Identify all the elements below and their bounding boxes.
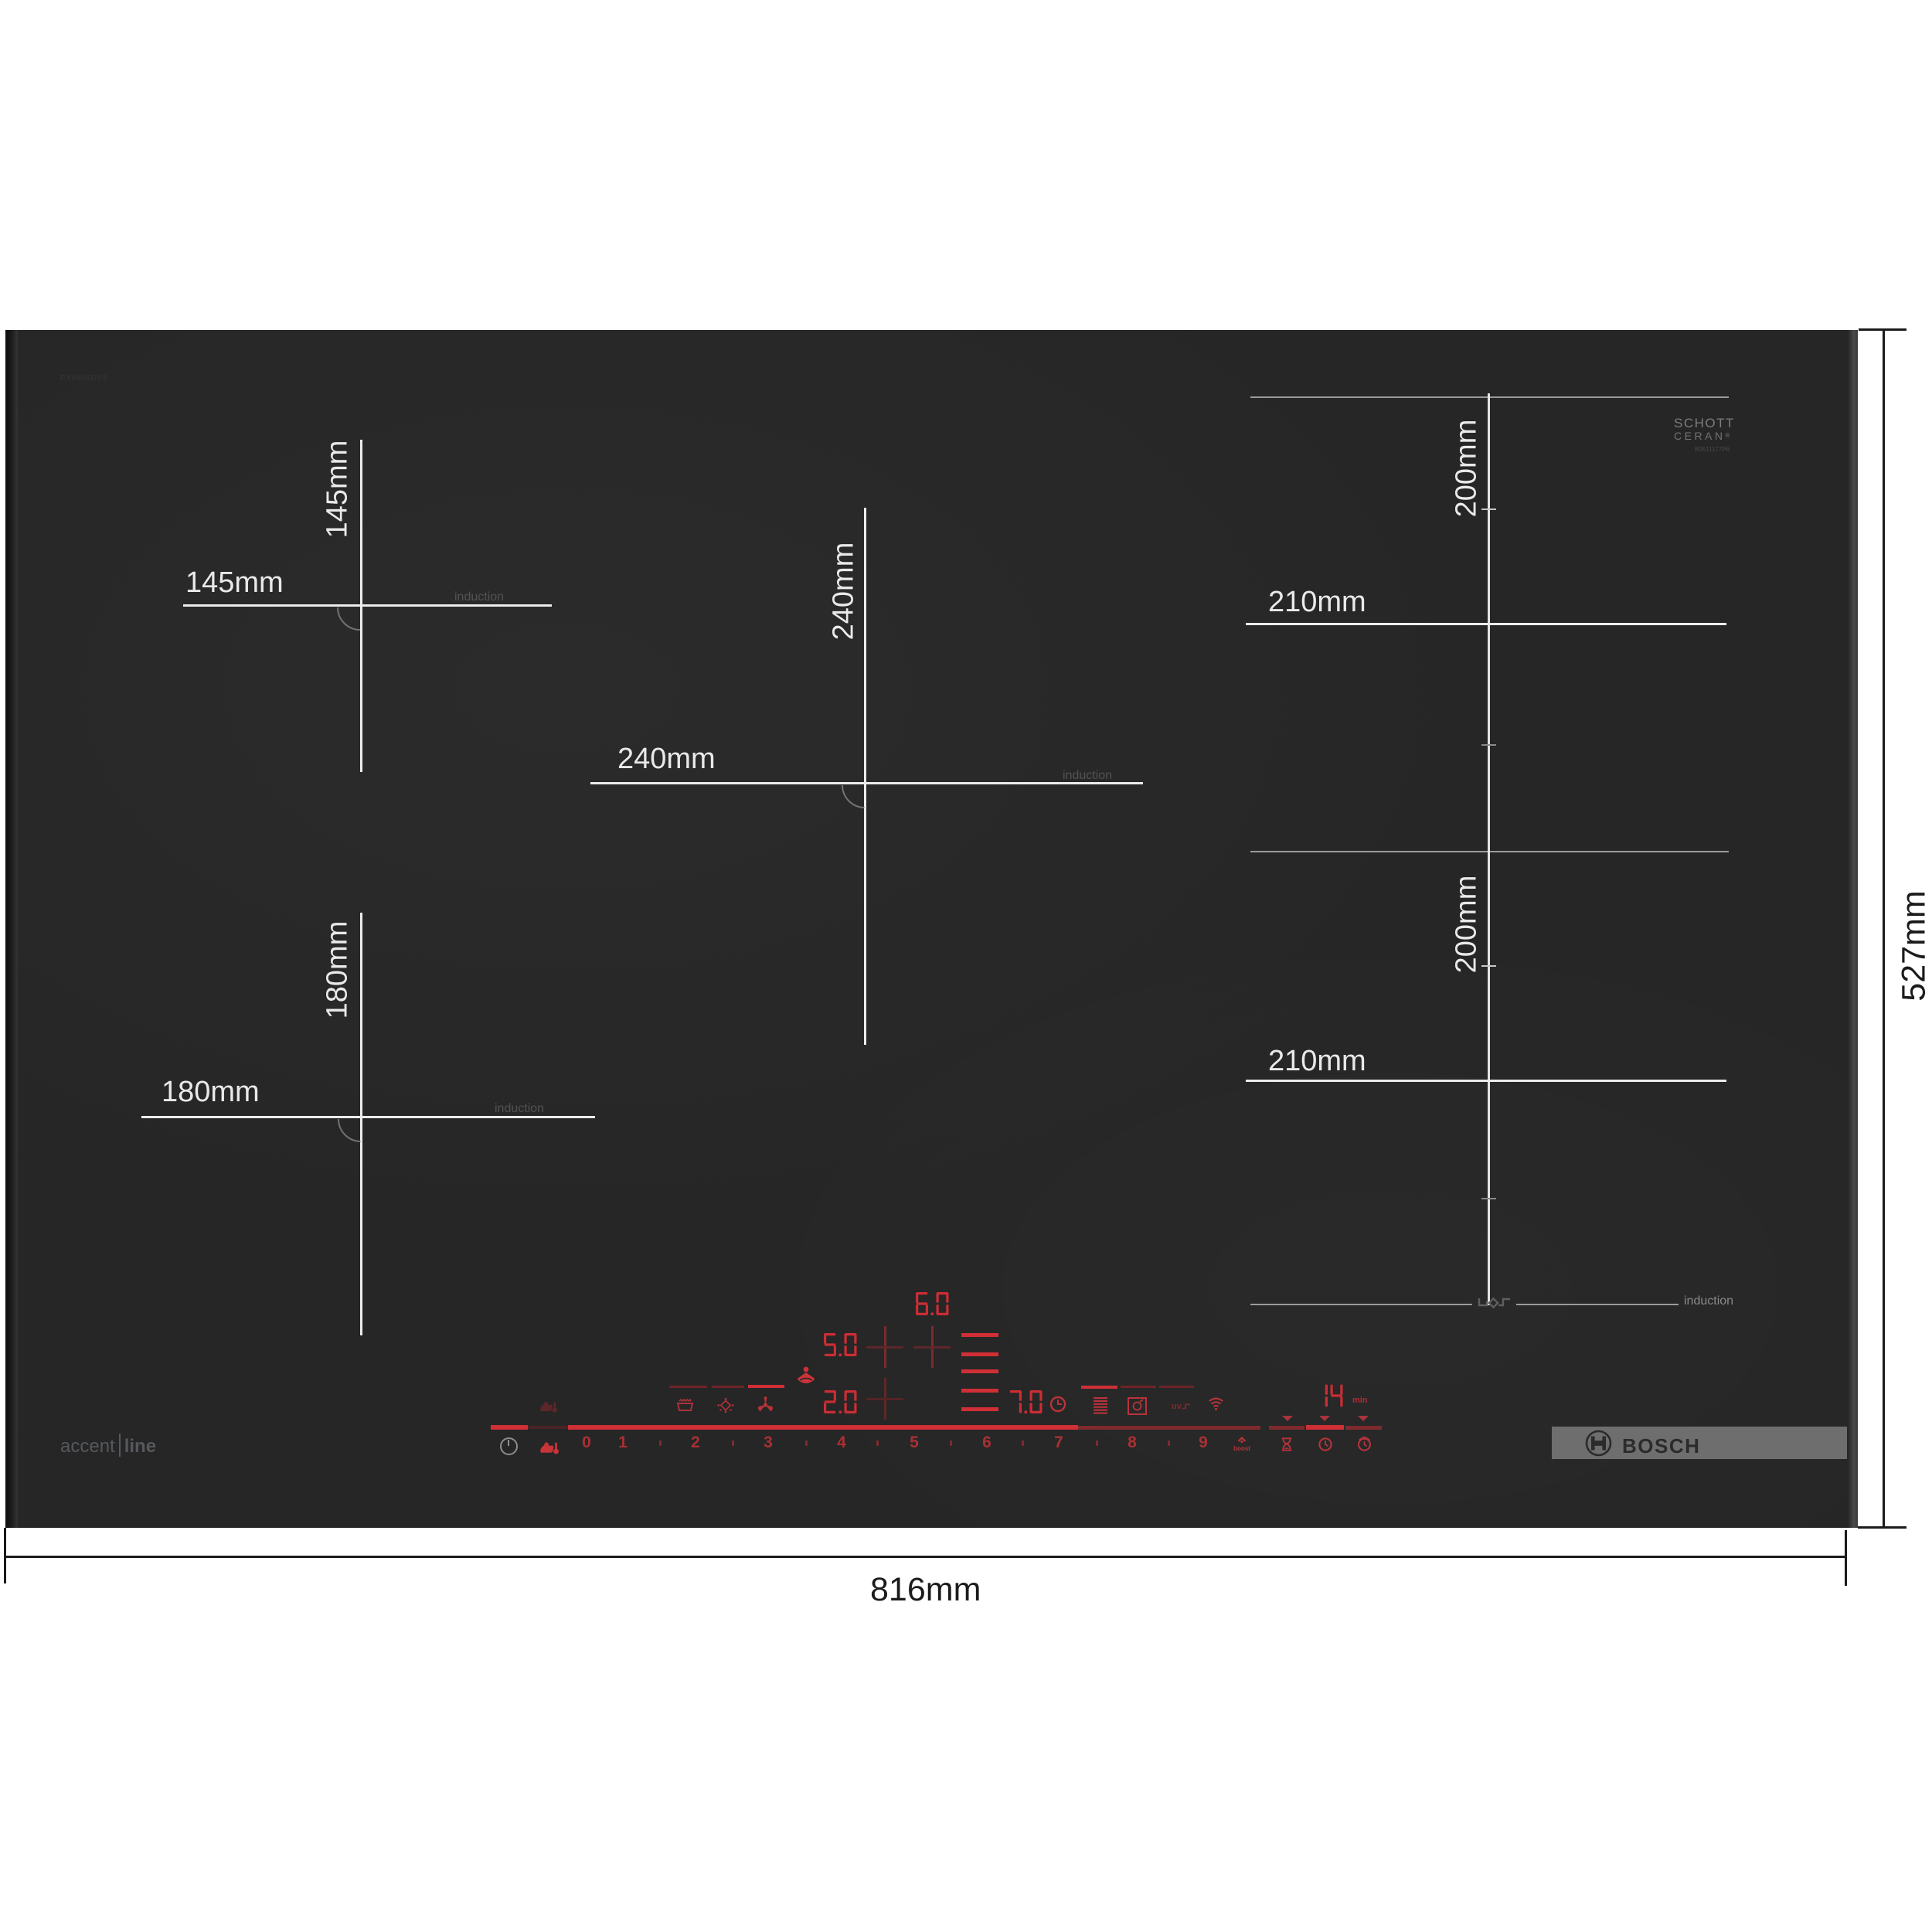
svg-text:boost: boost bbox=[1233, 1445, 1250, 1452]
svg-text:uv: uv bbox=[1172, 1402, 1182, 1411]
